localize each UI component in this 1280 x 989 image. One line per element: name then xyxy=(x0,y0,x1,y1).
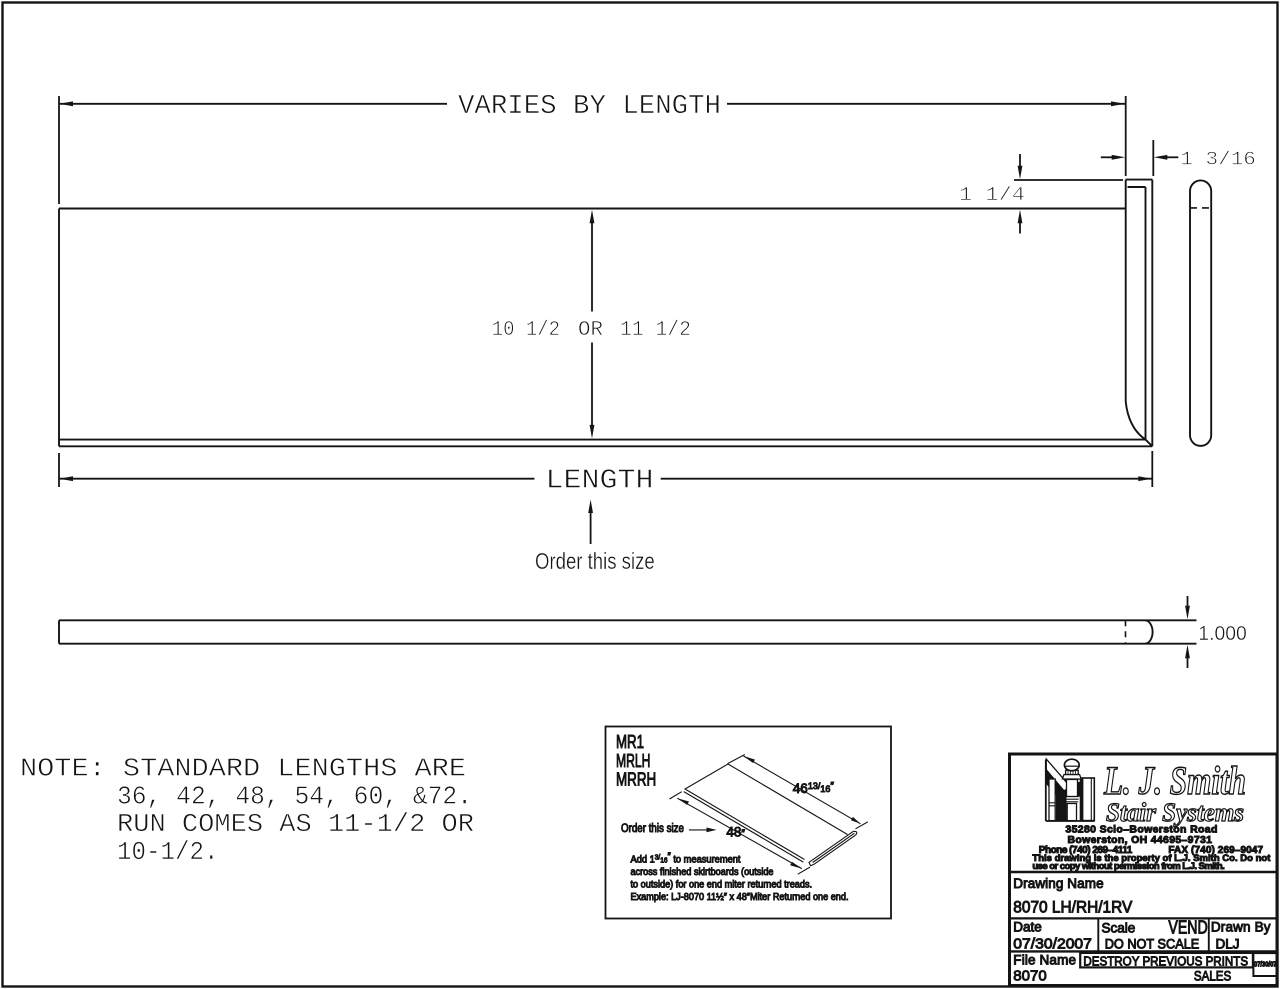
svg-text:Scale: Scale xyxy=(1102,921,1136,936)
svg-text:DESTROY PREVIOUS PRINTS: DESTROY PREVIOUS PRINTS xyxy=(1083,953,1248,968)
svg-text:Stair Systems: Stair Systems xyxy=(1106,798,1244,827)
svg-text:File Name: File Name xyxy=(1013,953,1076,968)
svg-text:Add 13/16″ to measurement: Add 13/16″ to measurement xyxy=(631,851,741,865)
svg-text:to outside) for one end miter: to outside) for one end miter returned t… xyxy=(631,879,813,890)
svg-text:Drawing Name: Drawing Name xyxy=(1013,876,1103,891)
svg-text:DLJ: DLJ xyxy=(1216,937,1240,952)
svg-text:MR1: MR1 xyxy=(616,732,644,752)
svg-text:across finished skirtboards (o: across finished skirtboards (outside xyxy=(631,867,774,878)
svg-text:use or copy without permission: use or copy without permission from L.J.… xyxy=(1032,861,1224,872)
svg-text:36, 42, 48, 54, 60, &72.: 36, 42, 48, 54, 60, &72. xyxy=(117,781,472,811)
svg-text:MRLH: MRLH xyxy=(616,751,650,771)
svg-text:1.000: 1.000 xyxy=(1198,623,1247,645)
svg-text:8070: 8070 xyxy=(1013,968,1046,985)
svg-text:NOTE: STANDARD LENGTHS ARE: NOTE: STANDARD LENGTHS ARE xyxy=(20,754,466,784)
svg-text:Date: Date xyxy=(1013,920,1042,935)
svg-text:LENGTH: LENGTH xyxy=(546,466,654,496)
svg-text:VARIES BY LENGTH: VARIES BY LENGTH xyxy=(458,92,721,122)
svg-text:MRRH: MRRH xyxy=(616,770,656,790)
svg-text:1 1/4: 1 1/4 xyxy=(959,184,1025,206)
svg-text:DO NOT SCALE: DO NOT SCALE xyxy=(1105,937,1200,952)
svg-text:10 1/2: 10 1/2 xyxy=(492,318,560,342)
svg-text:Order this size: Order this size xyxy=(535,548,655,574)
svg-text:8070 LH/RH/1RV: 8070 LH/RH/1RV xyxy=(1013,899,1132,917)
svg-text:11 1/2: 11 1/2 xyxy=(620,318,691,342)
svg-text:Example: LJ-8070 11½″ x 48″Mit: Example: LJ-8070 11½″ x 48″Miter Returne… xyxy=(631,892,849,903)
svg-text:07/30/2007: 07/30/2007 xyxy=(1013,936,1092,953)
svg-text:SALES: SALES xyxy=(1194,968,1231,983)
svg-text:07/30/07: 07/30/07 xyxy=(1254,962,1277,969)
svg-text:Order this size: Order this size xyxy=(621,823,684,835)
svg-text:VEND: VEND xyxy=(1168,918,1207,938)
svg-text:Drawn By: Drawn By xyxy=(1211,920,1271,935)
svg-text:1 3/16: 1 3/16 xyxy=(1180,148,1256,170)
svg-text:RUN COMES AS 11-1/2 OR: RUN COMES AS 11-1/2 OR xyxy=(117,809,474,839)
svg-text:L. J. Smith: L. J. Smith xyxy=(1103,758,1246,803)
svg-text:10-1/2.: 10-1/2. xyxy=(117,837,219,867)
svg-text:OR: OR xyxy=(578,318,603,342)
